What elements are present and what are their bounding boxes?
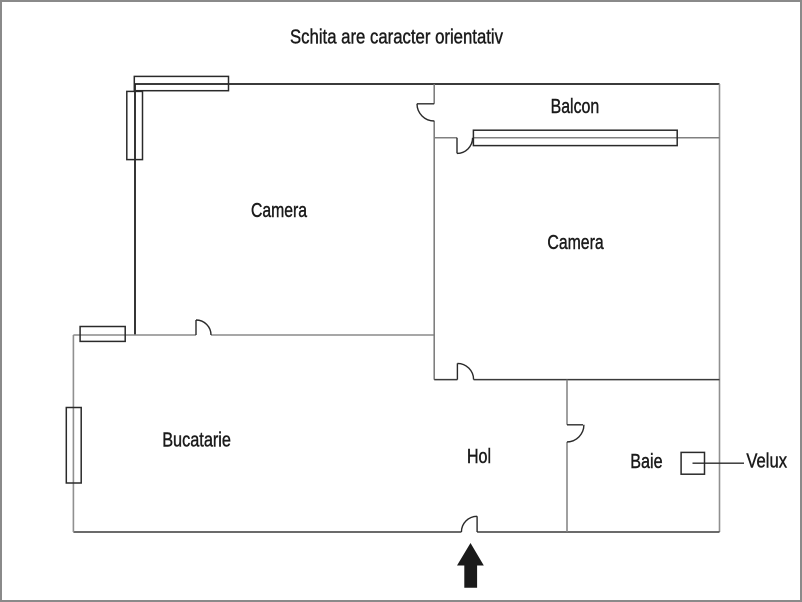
svg-text:Schita are caracter orientativ: Schita are caracter orientativ xyxy=(290,26,504,49)
svg-text:Balcon: Balcon xyxy=(551,95,600,118)
svg-text:Velux: Velux xyxy=(746,450,787,473)
svg-text:Camera: Camera xyxy=(547,231,604,254)
svg-text:Camera: Camera xyxy=(251,199,307,222)
svg-text:Hol: Hol xyxy=(467,445,491,468)
svg-text:Baie: Baie xyxy=(630,450,662,473)
svg-text:Bucatarie: Bucatarie xyxy=(162,428,231,451)
